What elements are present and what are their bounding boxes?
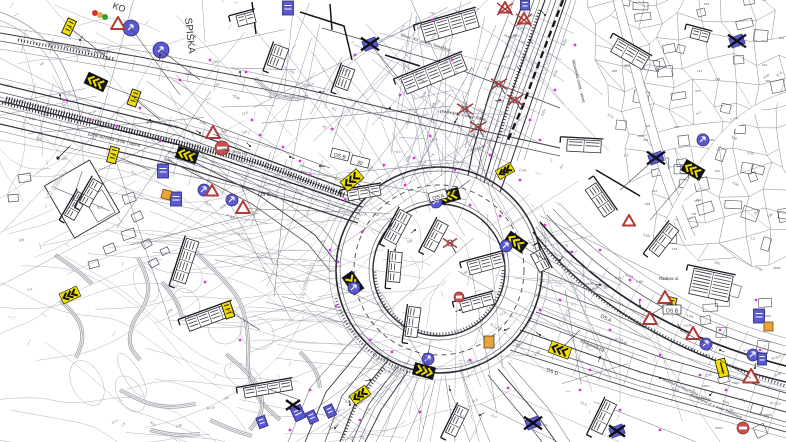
- svg-text:529: 529: [645, 202, 650, 206]
- svg-text:7.00: 7.00: [373, 213, 380, 217]
- svg-text:802: 802: [696, 198, 701, 202]
- svg-text:163: 163: [672, 247, 677, 251]
- svg-text:3.5%: 3.5%: [564, 250, 571, 254]
- svg-text:1.5: 1.5: [750, 236, 755, 241]
- svg-text:649/5: 649/5: [773, 266, 781, 270]
- svg-text:26a: 26a: [331, 269, 337, 273]
- svg-text:3.50: 3.50: [747, 151, 754, 156]
- svg-text:931: 931: [779, 36, 784, 40]
- svg-text:+0.4: +0.4: [394, 150, 401, 154]
- svg-text:105: 105: [61, 157, 67, 161]
- svg-text:515: 515: [704, 2, 709, 6]
- svg-text:414: 414: [762, 63, 767, 67]
- svg-text:2.0%: 2.0%: [636, 280, 644, 284]
- svg-text:373: 373: [695, 89, 700, 93]
- svg-text:841: 841: [715, 169, 720, 173]
- svg-text:183: 183: [715, 77, 720, 81]
- svg-text:R12: R12: [445, 189, 451, 193]
- svg-text:865: 865: [612, 69, 617, 73]
- svg-text:585/1: 585/1: [702, 384, 710, 388]
- svg-text:k.o.: k.o.: [230, 216, 236, 220]
- svg-text:3.5%: 3.5%: [185, 72, 192, 76]
- svg-text:666: 666: [709, 138, 714, 142]
- svg-text:254/2: 254/2: [715, 426, 723, 430]
- svg-text:704/7: 704/7: [732, 381, 740, 385]
- svg-text:Radeva ul.: Radeva ul.: [659, 276, 679, 281]
- svg-text:OS B: OS B: [666, 309, 679, 315]
- svg-text:2.50: 2.50: [593, 285, 600, 290]
- svg-text:440: 440: [765, 79, 770, 83]
- svg-text:755: 755: [691, 212, 696, 216]
- svg-text:II-1: II-1: [165, 156, 170, 161]
- svg-text:0.75: 0.75: [562, 244, 569, 248]
- svg-text:354: 354: [643, 138, 648, 142]
- svg-text:0.75: 0.75: [345, 400, 352, 404]
- svg-text:H3: H3: [320, 239, 325, 244]
- svg-text:127: 127: [697, 69, 702, 73]
- svg-text:12.5: 12.5: [540, 239, 547, 243]
- svg-text:26a: 26a: [624, 64, 630, 68]
- svg-text:2.0%: 2.0%: [738, 44, 746, 48]
- svg-text:821: 821: [652, 189, 657, 193]
- svg-text:2.0%: 2.0%: [519, 168, 527, 173]
- svg-text:R1-1: R1-1: [6, 84, 13, 88]
- svg-text:444: 444: [674, 125, 679, 129]
- svg-text:2.0%: 2.0%: [726, 408, 734, 412]
- svg-text:0.75: 0.75: [615, 276, 622, 280]
- svg-text:+0.45: +0.45: [41, 113, 49, 117]
- svg-text:3.50: 3.50: [457, 414, 464, 419]
- svg-text:425: 425: [645, 124, 650, 128]
- svg-text:OS C: OS C: [258, 192, 271, 198]
- svg-text:12: 12: [350, 435, 354, 439]
- svg-text:2.50: 2.50: [405, 120, 412, 125]
- svg-text:2.0%: 2.0%: [540, 423, 548, 427]
- svg-text:3.5%: 3.5%: [191, 152, 198, 156]
- svg-text:12: 12: [366, 407, 370, 411]
- svg-text:R=12.0: R=12.0: [284, 94, 295, 98]
- svg-text:R1-1: R1-1: [513, 34, 520, 38]
- svg-text:R1-1: R1-1: [516, 343, 523, 347]
- svg-text:H3: H3: [430, 11, 435, 16]
